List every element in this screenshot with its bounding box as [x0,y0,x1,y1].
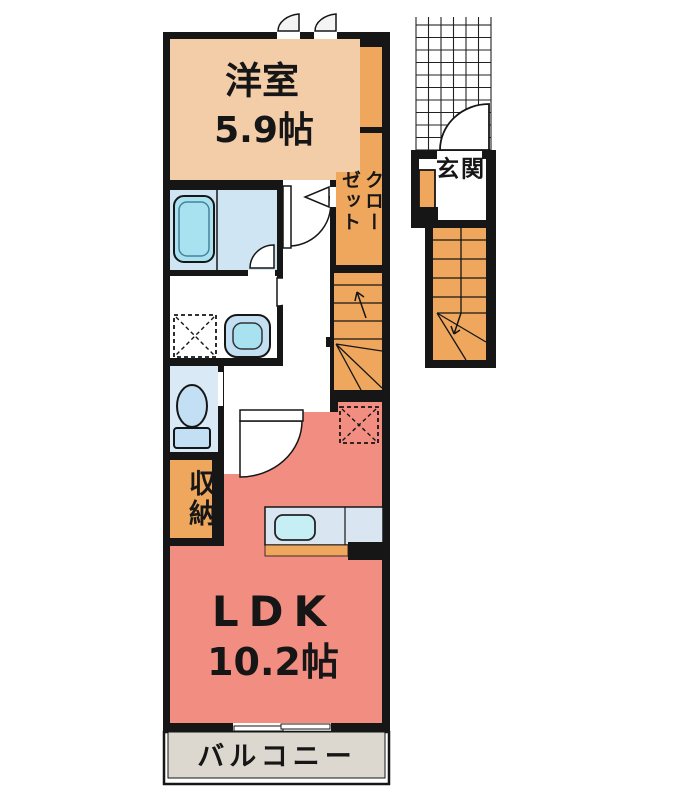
storage-label: 収納 [177,469,213,541]
kitchen-counter [265,507,383,560]
toilet-icon [177,385,207,427]
external-staircase [425,220,496,368]
floorplan-drawing [0,0,683,800]
floorplan-canvas: 洋室 5.9帖 クローゼット 収納 LDK 10.2帖 バルコニー 玄関 [0,0,683,800]
ldk-label: LDK [212,591,336,633]
closet-label: クローゼット [334,170,384,236]
bathroom [170,190,277,276]
western-room-side-alcove-lower [360,133,382,172]
western-room-size: 5.9帖 [214,113,314,149]
western-room-side-alcove-upper [360,47,382,127]
hallway-floor-toilet-front [224,366,283,412]
washbasin-icon [225,315,270,357]
ldk-size: 10.2帖 [207,643,339,681]
internal-staircase [334,273,382,390]
shoe-cabinet-icon [419,170,435,208]
balcony-sliding-window [233,723,331,732]
western-room-label: 洋室 [225,63,299,100]
kitchen-sink-icon [275,515,315,540]
balcony-label: バルコニー [197,744,356,771]
entrance-label: 玄関 [436,159,486,182]
